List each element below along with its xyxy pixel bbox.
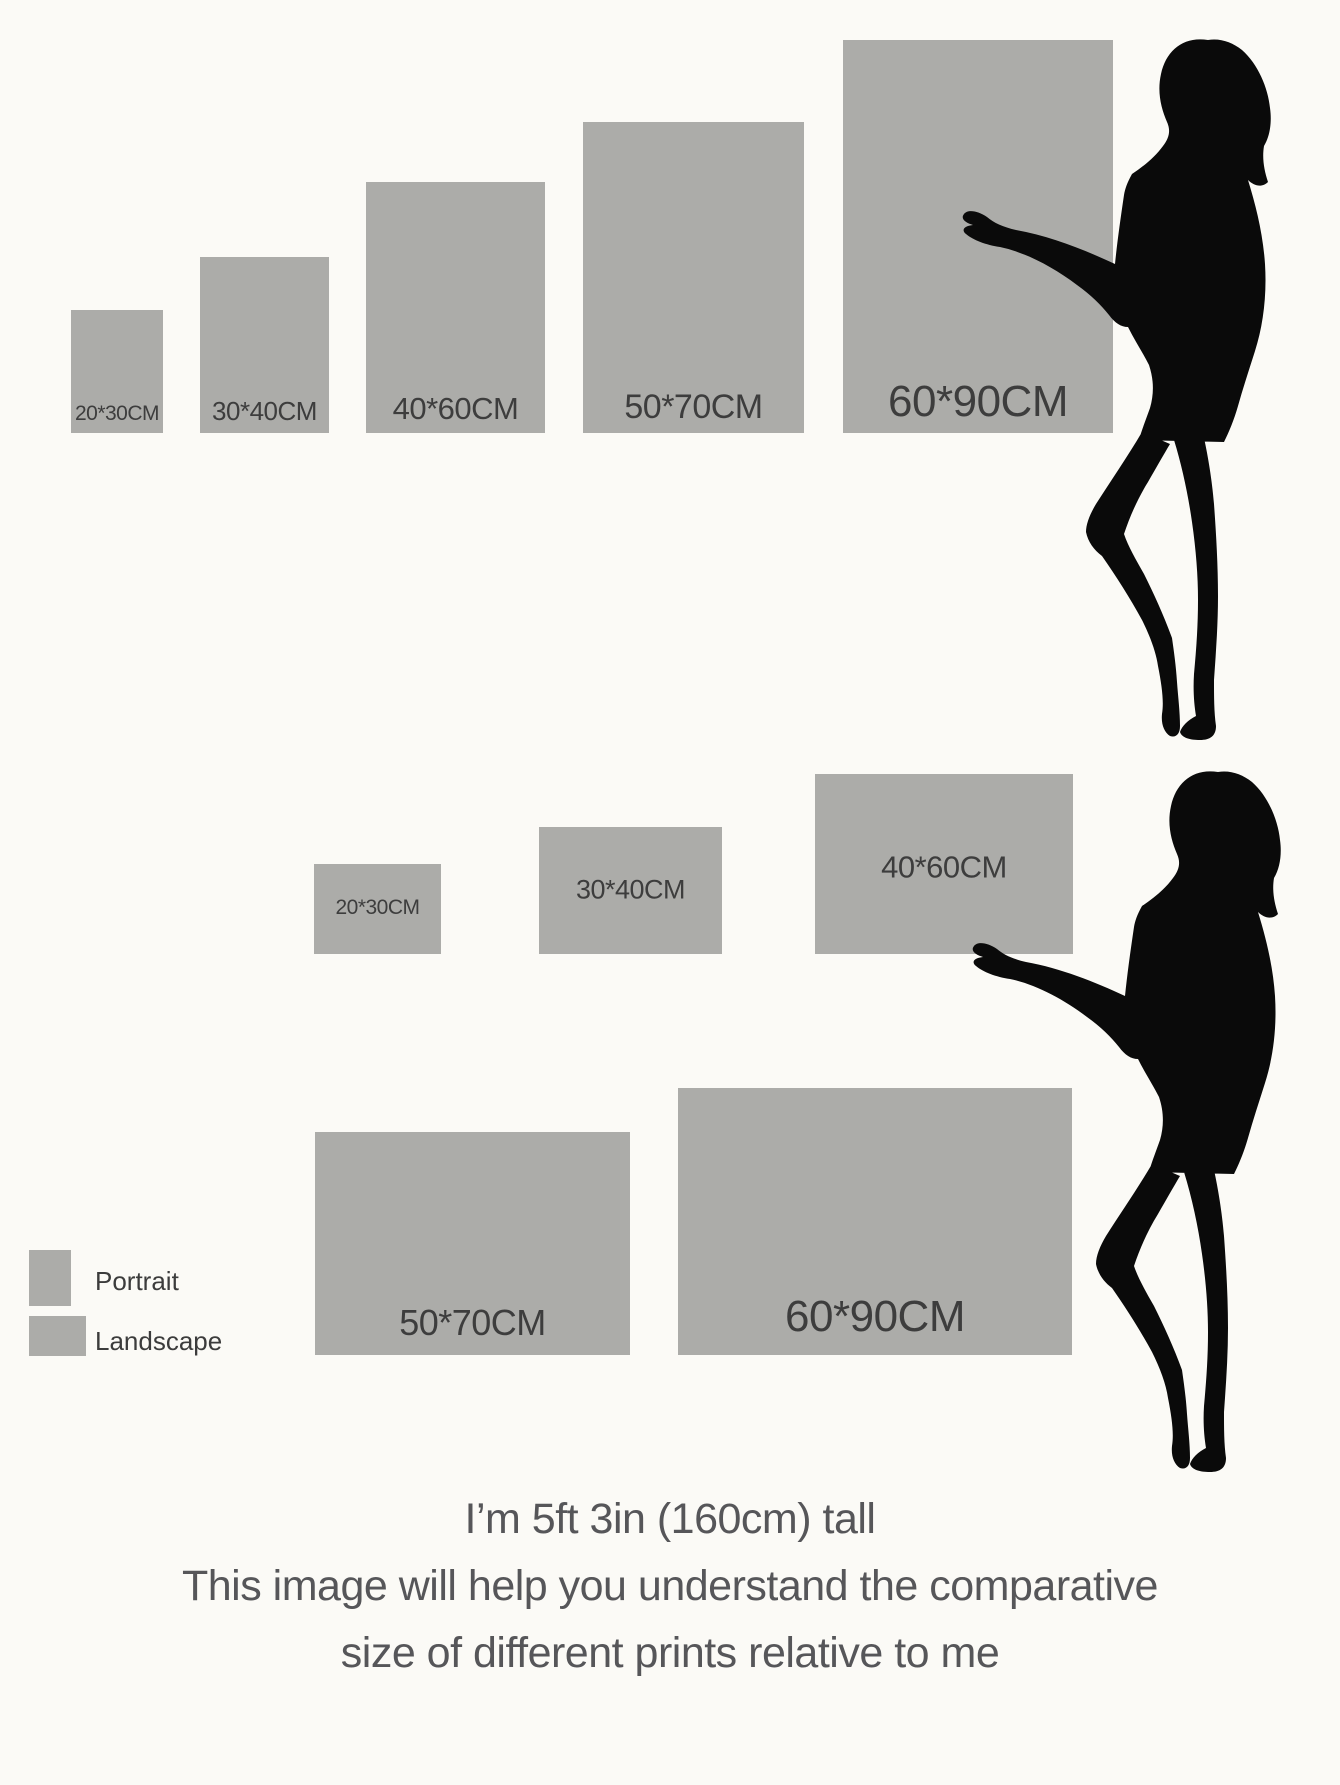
- legend-portrait-swatch: [29, 1250, 71, 1306]
- print-size-comparison-infographic: 20*30CM 30*40CM 40*60CM 50*70CM 60*90CM …: [0, 0, 1340, 1785]
- footer-line-2: This image will help you understand the …: [0, 1553, 1340, 1620]
- footer-line-1: I’m 5ft 3in (160cm) tall: [0, 1486, 1340, 1553]
- size-label: 20*30CM: [71, 403, 163, 424]
- woman-silhouette-icon: [958, 36, 1298, 740]
- landscape-print-30x40: 30*40CM: [539, 827, 722, 954]
- portrait-print-30x40: 30*40CM: [200, 257, 329, 433]
- portrait-print-50x70: 50*70CM: [583, 122, 804, 433]
- landscape-print-50x70: 50*70CM: [315, 1132, 630, 1355]
- size-label: 30*40CM: [539, 876, 722, 903]
- legend-landscape-label: Landscape: [95, 1328, 222, 1354]
- woman-silhouette-icon: [968, 768, 1308, 1472]
- size-label: 20*30CM: [314, 897, 441, 918]
- portrait-print-20x30: 20*30CM: [71, 310, 163, 433]
- legend-portrait-label: Portrait: [95, 1268, 179, 1294]
- size-label: 50*70CM: [583, 390, 804, 424]
- size-label: 30*40CM: [200, 398, 329, 424]
- landscape-print-20x30: 20*30CM: [314, 864, 441, 954]
- portrait-print-40x60: 40*60CM: [366, 182, 545, 433]
- legend-landscape-swatch: [29, 1316, 86, 1356]
- size-label: 40*60CM: [366, 393, 545, 424]
- size-label: 50*70CM: [315, 1305, 630, 1341]
- footer-line-3: size of different prints relative to me: [0, 1620, 1340, 1687]
- footer-caption: I’m 5ft 3in (160cm) tall This image will…: [0, 1486, 1340, 1687]
